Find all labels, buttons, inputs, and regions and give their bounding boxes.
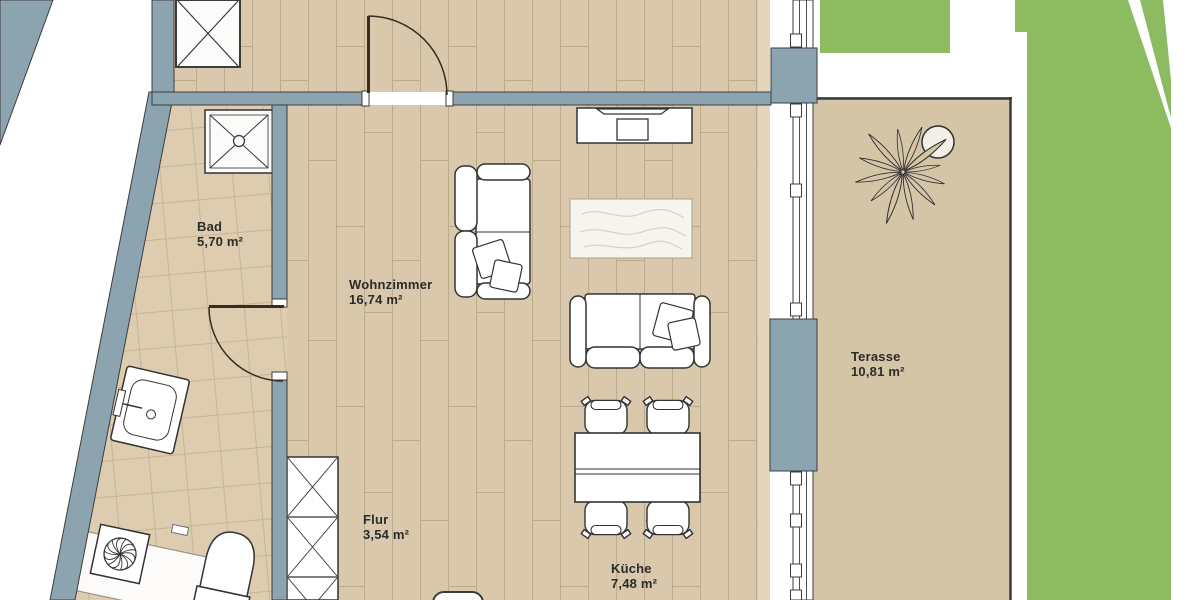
- room-area: 10,81 m²: [851, 364, 905, 379]
- wall-pillar-top: [771, 48, 817, 103]
- kitchen-element-symbol: [433, 592, 483, 600]
- wall-pillar-mid: [770, 319, 817, 471]
- window-edge-strip: [758, 105, 770, 600]
- room-area: 3,54 m²: [363, 527, 409, 542]
- garden-main: [1015, 0, 1171, 600]
- wardrobe-symbol: [287, 457, 338, 600]
- room-name: Bad: [197, 219, 243, 234]
- garden-patch-top: [820, 0, 950, 53]
- floor-plan-drawing: [0, 0, 1200, 600]
- room-label-flur: Flur 3,54 m²: [363, 512, 409, 542]
- window-edge-strip: [758, 0, 770, 92]
- floors: [75, 0, 1012, 600]
- wall-bath-lower: [272, 380, 287, 600]
- sofa-two-seat-symbol: [455, 164, 530, 299]
- chair-symbol: [581, 397, 630, 435]
- shaft-symbol: [176, 0, 240, 67]
- outer-wall-corner: [0, 0, 53, 145]
- wall-top-horizontal-left: [152, 92, 362, 105]
- room-label-bad: Bad 5,70 m²: [197, 219, 243, 249]
- dining-table-symbol: [575, 433, 700, 502]
- chair-symbol: [643, 397, 692, 435]
- terrace-floor: [813, 97, 1011, 600]
- wall-top-left-vertical: [152, 0, 174, 92]
- chair-symbol: [581, 501, 630, 539]
- room-name: Flur: [363, 512, 409, 527]
- room-area: 5,70 m²: [197, 234, 243, 249]
- tv-sideboard-symbol: [577, 108, 692, 143]
- washing-machine-symbol: [90, 524, 149, 583]
- room-name: Wohnzimmer: [349, 277, 432, 292]
- room-label-kueche: Küche 7,48 m²: [611, 561, 657, 591]
- chair-symbol: [643, 501, 692, 539]
- wall-top-horizontal-right: [452, 92, 771, 105]
- shower-symbol: [205, 110, 273, 173]
- room-label-wohnzimmer: Wohnzimmer 16,74 m²: [349, 277, 432, 307]
- room-label-terasse: Terasse 10,81 m²: [851, 349, 905, 379]
- room-name: Terasse: [851, 349, 905, 364]
- room-name: Küche: [611, 561, 657, 576]
- rug-symbol: [570, 199, 692, 258]
- window-segment-top: [791, 0, 814, 48]
- window-segment-middle: [791, 103, 814, 319]
- room-area: 7,48 m²: [611, 576, 657, 591]
- wall-bath-upper: [272, 105, 287, 303]
- room-area: 16,74 m²: [349, 292, 432, 307]
- sofa-three-seat-symbol: [570, 294, 710, 368]
- window-segment-bottom: [791, 471, 814, 600]
- floor-plan: Bad 5,70 m² Wohnzimmer 16,74 m² Flur 3,5…: [0, 0, 1200, 600]
